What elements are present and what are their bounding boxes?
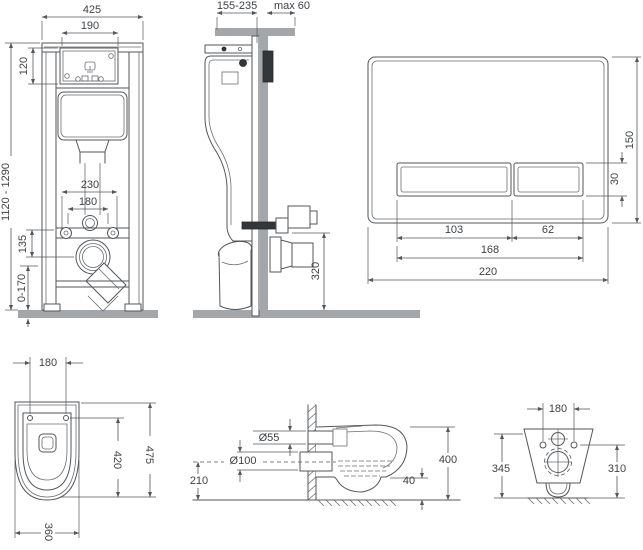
dim-label: 230 — [81, 179, 99, 191]
dim-label: 40 — [403, 475, 415, 487]
fixing-hole-right — [571, 442, 577, 448]
view-pan-rear: 180 345 310 — [488, 403, 630, 504]
dim-label: Ø55 — [259, 432, 280, 444]
dim-total-depth-400: 400 — [410, 427, 460, 500]
dim-label: 135 — [17, 235, 29, 253]
fixing-hole-left — [540, 442, 546, 448]
floor-hatching — [318, 500, 396, 506]
flush-plate-body — [368, 57, 608, 223]
outlet-pipe — [242, 222, 280, 229]
dim-label: 425 — [83, 4, 101, 16]
dim-label: 1120 - 1290 — [0, 163, 12, 221]
dim-label: 0-170 — [16, 274, 28, 302]
dim-label: 320 — [310, 262, 322, 280]
dim-plate-height: 150 — [612, 57, 641, 223]
drawing-canvas: 425 190 120 1120 - 1290 230 — [0, 0, 643, 550]
dim-label: 180 — [79, 196, 97, 208]
dim-outlet-diameter: Ø100 — [224, 440, 298, 482]
dim-service-opening-width: 190 — [62, 20, 118, 46]
view-frame-front: 425 190 120 1120 - 1290 230 — [0, 4, 158, 327]
pipe-nut — [276, 218, 288, 233]
dim-label: 180 — [549, 403, 567, 415]
dim-label: 62 — [542, 224, 554, 236]
dim-label: max 60 — [274, 0, 310, 12]
cistern-front — [58, 92, 127, 140]
flush-plate-geometry — [368, 57, 608, 223]
dim-buttons-total-width: 168 — [397, 244, 583, 262]
dim-inlet-diameter: Ø55 — [253, 419, 306, 456]
dim-outlet-axis-height: 210 — [186, 462, 211, 500]
dim-label: 345 — [492, 463, 510, 475]
wall-bracket — [205, 45, 252, 53]
adjustable-foot-right — [125, 304, 141, 311]
dim-label: 420 — [111, 451, 123, 469]
dim-label: 475 — [143, 446, 155, 464]
inlet-valve — [288, 206, 310, 228]
dim-frame-height-range: 1120 - 1290 — [0, 43, 40, 310]
dim-label: 180 — [39, 357, 57, 369]
dim-label: 168 — [481, 244, 499, 256]
flush-unit-side — [263, 51, 273, 82]
dim-label: 360 — [42, 523, 54, 541]
flush-button-small — [514, 163, 583, 196]
dim-label: 30 — [609, 173, 621, 185]
floor-hatching — [528, 498, 590, 504]
dim-label: 103 — [445, 224, 463, 236]
dim-label: 120 — [18, 57, 30, 75]
dim-label: 220 — [479, 266, 497, 278]
inlet-spigot — [308, 431, 333, 444]
dim-label: 190 — [81, 20, 99, 32]
dim-top-clearance-max60: max 60 — [267, 0, 310, 26]
dim-overall-height-345: 345 — [488, 434, 528, 498]
dim-label: Ø100 — [230, 455, 257, 467]
floor-surface — [193, 310, 420, 318]
adjustable-foot-left — [44, 304, 60, 311]
technical-drawing-toilet-frame: 425 190 120 1120 - 1290 230 — [0, 0, 643, 550]
view-pan-top: 180 420 475 360 — [13, 357, 157, 550]
flush-button-large — [397, 163, 511, 196]
pan-rear-geometry — [524, 429, 593, 504]
view-pan-side: Ø55 Ø100 210 400 40 — [186, 405, 460, 510]
dim-label: 400 — [439, 454, 457, 466]
service-opening — [60, 48, 118, 84]
pan-top-geometry — [15, 402, 79, 500]
view-flush-plate: 103 62 168 220 150 30 — [368, 57, 641, 284]
frame-rail-side — [252, 36, 259, 316]
dim-bottom-clearance-40: 40 — [390, 468, 428, 510]
dim-label: 150 — [624, 131, 636, 149]
outlet-bump — [546, 483, 570, 497]
outlet-socket — [300, 452, 332, 471]
top-ledge — [215, 28, 295, 36]
dim-label: 210 — [190, 475, 208, 487]
dim-label: 310 — [608, 463, 626, 475]
outlet-flange — [270, 237, 281, 272]
dim-label: 155-235 — [217, 0, 257, 12]
dim-frame-depth-range: 155-235 — [217, 0, 257, 43]
